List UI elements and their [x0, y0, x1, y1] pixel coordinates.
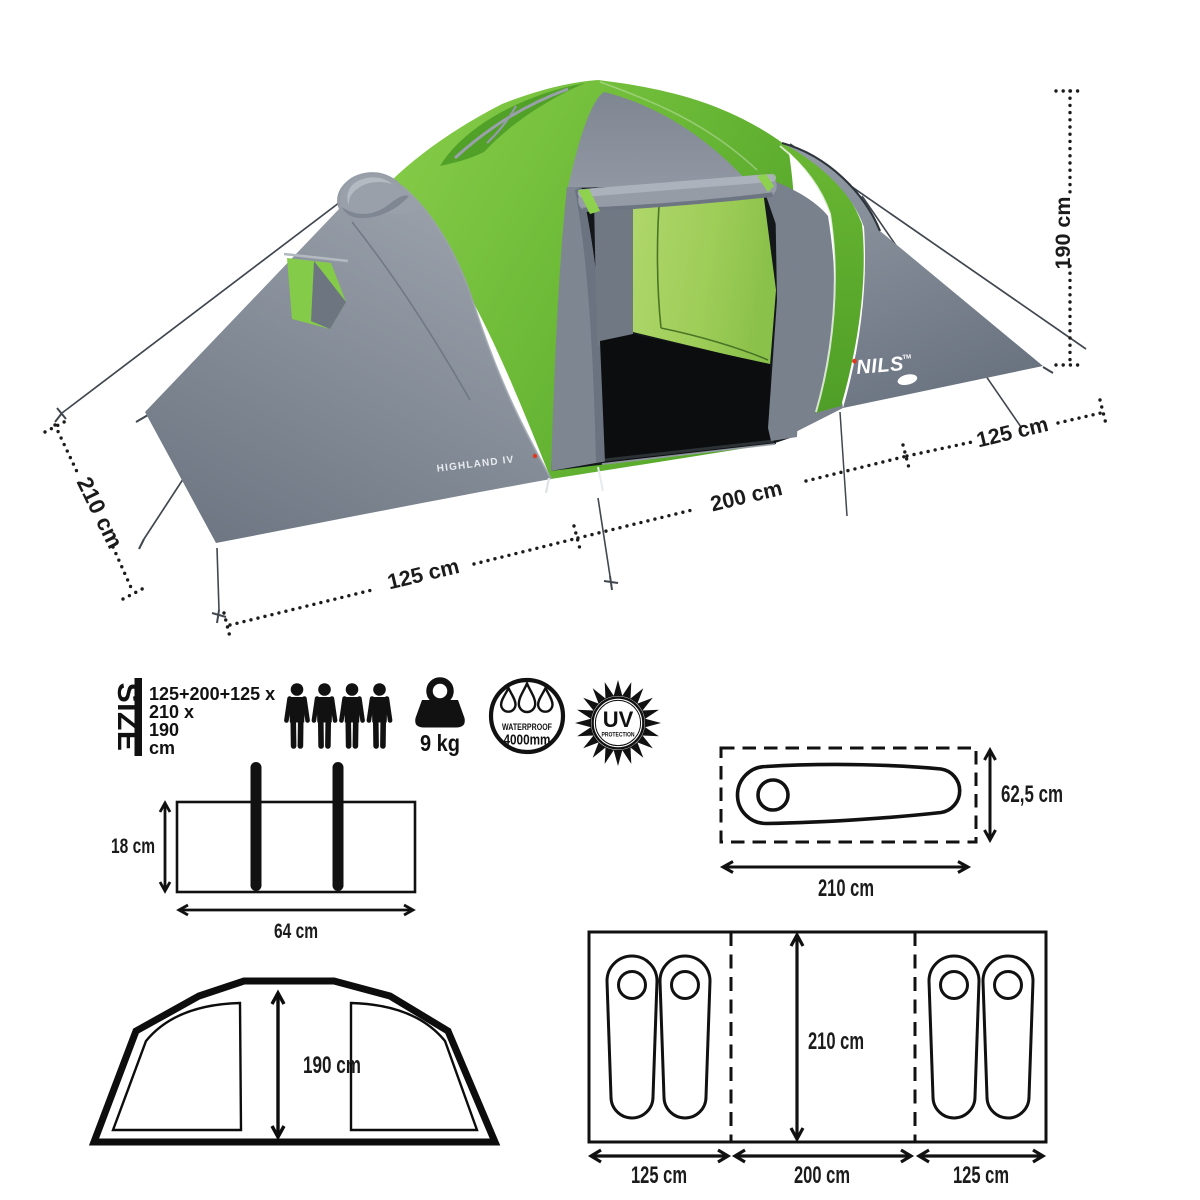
- svg-text:190 cm: 190 cm: [1051, 197, 1075, 270]
- svg-text:125 cm: 125 cm: [385, 554, 462, 594]
- svg-text:62,5 cm: 62,5 cm: [1001, 781, 1063, 808]
- svg-text:9 kg: 9 kg: [420, 730, 460, 756]
- svg-text:125+200+125 x: 125+200+125 x: [149, 684, 275, 704]
- svg-text:125 cm: 125 cm: [953, 1162, 1009, 1189]
- svg-text:TM: TM: [902, 354, 911, 361]
- svg-text:4000mm: 4000mm: [504, 732, 551, 749]
- svg-text:190 cm: 190 cm: [303, 1052, 361, 1079]
- svg-text:210 x: 210 x: [149, 702, 194, 722]
- svg-text:125 cm: 125 cm: [631, 1162, 687, 1189]
- svg-text:UV: UV: [603, 707, 634, 732]
- svg-text:PROTECTION: PROTECTION: [602, 733, 635, 739]
- svg-text:210 cm: 210 cm: [808, 1028, 864, 1055]
- svg-text:210 cm: 210 cm: [72, 473, 128, 553]
- svg-text:cm: cm: [149, 738, 175, 758]
- svg-text:210 cm: 210 cm: [818, 875, 874, 902]
- svg-text:200 cm: 200 cm: [708, 476, 785, 516]
- svg-text:125 cm: 125 cm: [974, 412, 1051, 452]
- svg-text:18 cm: 18 cm: [111, 834, 155, 858]
- svg-text:190: 190: [149, 720, 179, 740]
- svg-text:64 cm: 64 cm: [274, 919, 318, 943]
- svg-text:NILS: NILS: [855, 353, 904, 379]
- svg-text:200 cm: 200 cm: [794, 1162, 850, 1189]
